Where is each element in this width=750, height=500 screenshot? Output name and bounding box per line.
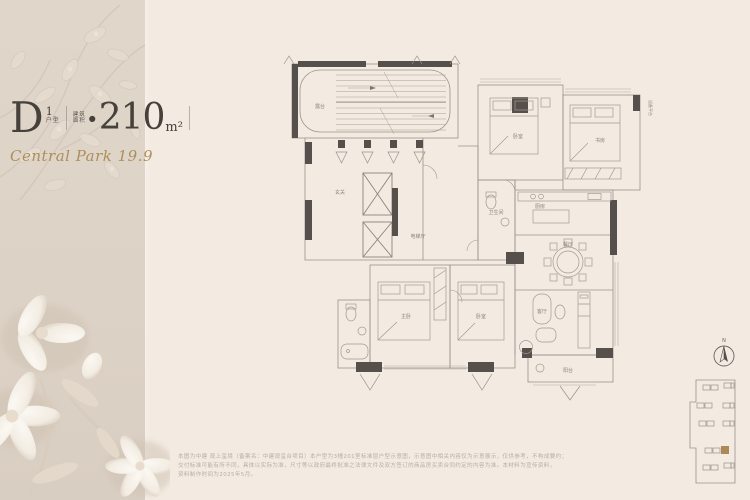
- white-flower-sculpture: [0, 268, 170, 500]
- highlighted-building: [721, 446, 729, 454]
- window-lines: [384, 79, 631, 385]
- wardrobe-icon: [434, 268, 446, 320]
- tv-console-icon: [578, 292, 590, 348]
- unit-letter: D: [10, 98, 44, 138]
- room-label-bedroom-1: 卧室: [513, 133, 523, 140]
- area-unit: m²: [165, 120, 183, 138]
- basin-icon: [358, 327, 366, 335]
- room-label-living: 客厅: [537, 308, 547, 315]
- header-separator-2: [189, 106, 190, 130]
- wardrobe-icon: [565, 168, 621, 179]
- unit-number: 1: [46, 106, 53, 117]
- floor-plan-drawing: 露台 玄关 电梯厅 卧室 书房 卫生间 厨房 餐厅 客厅 主卧 卧室 阳台 设备…: [278, 50, 668, 450]
- site-buildings: [697, 383, 734, 470]
- bay-window-marks: [284, 56, 580, 400]
- column-pendants: [336, 152, 425, 163]
- area-caption: 建筑 面积: [73, 112, 86, 125]
- bed-icon: [378, 282, 430, 340]
- area-value: 210: [99, 101, 165, 135]
- room-label-master-bedroom: 主卧: [401, 313, 411, 320]
- unit-header: D 1 户型 建筑 面积 ● 210 m² Central Park 19.9: [10, 98, 196, 165]
- room-label-equipment-platform: 设备平台: [648, 100, 654, 116]
- disclaimer-text: 本图为中建 观上玺境（备案名：中建观玺台项目）本户型为3幢201室标准层户型示意…: [178, 453, 662, 480]
- stair-hatching: [336, 72, 446, 134]
- flower-bloom-2: [0, 368, 60, 464]
- door-arcs: [423, 165, 515, 302]
- toilet-icon: [346, 304, 356, 321]
- compass-north-label: N: [722, 338, 726, 344]
- room-label-foyer: 玄关: [335, 189, 345, 196]
- kitchen-counter-icon: [518, 192, 611, 223]
- room-label-dining: 餐厅: [563, 241, 573, 248]
- room-label-study: 书房: [595, 137, 605, 144]
- bathtub-icon: [341, 344, 368, 359]
- disclaimer-line-3: 资料制作时间为2025年5月。: [178, 471, 662, 480]
- compass-icon: N: [714, 338, 734, 366]
- room-outlines: [292, 64, 640, 382]
- brand-tagline: Central Park 19.9: [10, 147, 196, 165]
- bed-icon: [458, 282, 504, 340]
- header-separator: [66, 106, 67, 130]
- room-label-bedroom-2: 卧室: [476, 313, 486, 320]
- bullet-dot: ●: [89, 114, 96, 123]
- basin-icon: [501, 218, 509, 226]
- site-plan: N: [683, 335, 745, 495]
- disclaimer-line-1: 本图为中建 观上玺境（备案名：中建观玺台项目）本户型为3幢201室标准层户型示意…: [178, 453, 662, 462]
- elevator-shafts: [363, 173, 392, 257]
- unit-type-label: 户型: [46, 117, 60, 125]
- room-label-elevator-hall: 电梯厅: [410, 233, 425, 240]
- toilet-icon: [486, 192, 496, 209]
- site-outline: [690, 380, 735, 483]
- room-label-terrace: 露台: [315, 103, 325, 110]
- sofa-icon: [520, 294, 566, 354]
- room-label-bathroom: 卫生间: [488, 209, 503, 216]
- floorplan-brochure-page: { "colors": { "page_background": "#f3eae…: [0, 0, 750, 500]
- disclaimer-line-2: 交付标准可能有所不同，具体以实际为准，尺寸等以政府最终批准之法律文件及双方签订的…: [178, 462, 662, 471]
- room-label-balcony: 阳台: [563, 367, 573, 374]
- plant-icon: [536, 364, 544, 372]
- bed-icon: [570, 105, 620, 161]
- room-label-kitchen: 厨房: [535, 203, 545, 210]
